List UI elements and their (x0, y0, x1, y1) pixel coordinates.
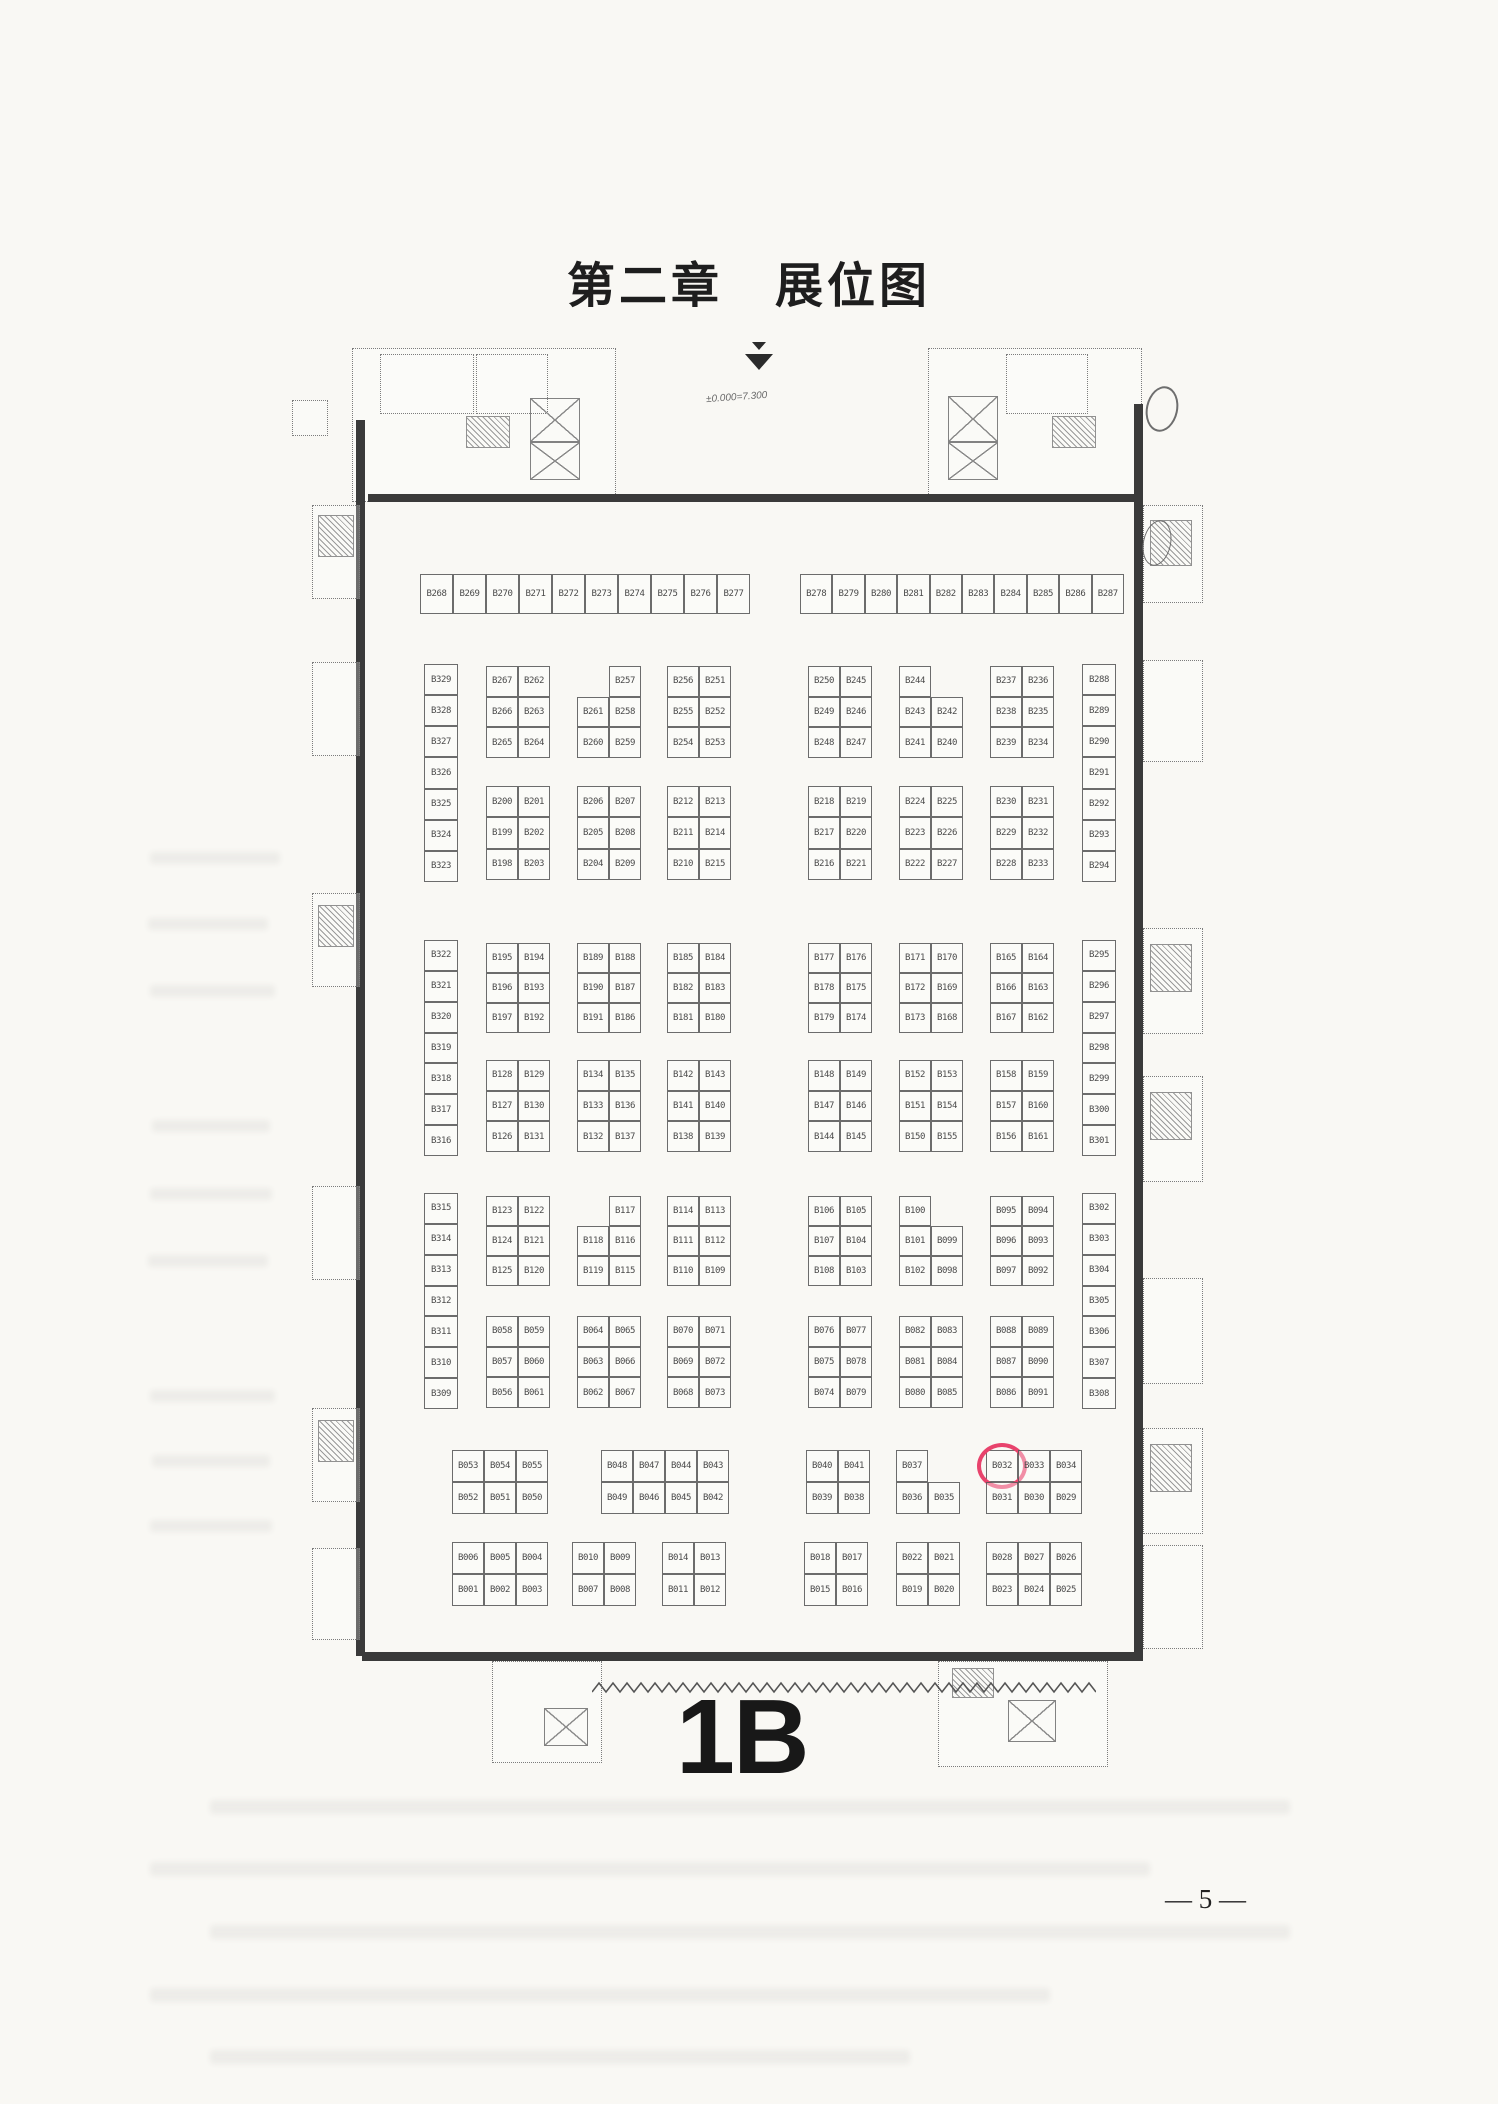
booth-block: B185B184B182B183B181B180 (667, 943, 731, 1033)
booth-cell: B231 (1022, 786, 1054, 817)
booth-notch (577, 1196, 609, 1226)
booth-cell: B182 (667, 973, 699, 1003)
booth-cell: B157 (990, 1091, 1022, 1122)
booth-cell: B001 (452, 1574, 484, 1606)
handwritten-mark (1142, 383, 1183, 435)
booth-cell: B196 (486, 973, 518, 1003)
booth-cell: B293 (1082, 820, 1116, 851)
booth-cell: B114 (667, 1196, 699, 1226)
booth-cell: B033 (1018, 1450, 1050, 1482)
booth-cell: B179 (808, 1003, 840, 1033)
booth-cell: B008 (604, 1574, 636, 1606)
scan-bleed (150, 852, 280, 864)
booth-cell: B186 (609, 1003, 641, 1033)
booth-cell: B227 (931, 849, 963, 880)
side-room (1143, 1545, 1203, 1649)
floor-plan: ±0.000=7.300 B268B269B270B271B272B273B27… (0, 0, 1498, 2104)
booth-cell: B086 (990, 1377, 1022, 1408)
scan-bleed (150, 1188, 272, 1200)
side-room (312, 1186, 360, 1280)
booth-cell: B209 (609, 849, 641, 880)
booth-cell: B103 (840, 1256, 872, 1286)
booth-cell: B278 (800, 574, 832, 614)
booth-cell: B011 (662, 1574, 694, 1606)
booth-cell: B037 (896, 1450, 928, 1482)
booth-block: B295B296B297B298B299B300B301 (1082, 940, 1116, 1156)
booth-cell: B197 (486, 1003, 518, 1033)
booth-cell: B242 (931, 697, 963, 728)
booth-cell: B252 (699, 697, 731, 728)
booth-cell: B213 (699, 786, 731, 817)
booth-cell: B258 (609, 697, 641, 728)
booth-cell: B307 (1082, 1347, 1116, 1378)
booth-cell: B102 (899, 1256, 931, 1286)
booth-cell: B082 (899, 1316, 931, 1347)
booth-cell: B303 (1082, 1224, 1116, 1255)
booth-cell: B254 (667, 727, 699, 758)
booth-cell: B118 (577, 1226, 609, 1256)
booth-cell: B208 (609, 817, 641, 848)
booth-block: B152B153B151B154B150B155 (899, 1060, 963, 1152)
booth-cell: B276 (684, 574, 717, 614)
booth-cell: B319 (424, 1033, 458, 1064)
elevator-shaft-icon (530, 398, 580, 442)
booth-cell: B067 (609, 1377, 641, 1408)
booth-cell: B289 (1082, 695, 1116, 726)
booth-cell: B260 (577, 727, 609, 758)
booth-cell: B255 (667, 697, 699, 728)
booth-block: B040B041B039B038 (806, 1450, 870, 1514)
booth-cell: B144 (808, 1121, 840, 1152)
booth-cell: B158 (990, 1060, 1022, 1091)
booth-block: B123B122B124B121B125B120 (486, 1196, 550, 1286)
booth-block: B288B289B290B291B292B293B294 (1082, 664, 1116, 882)
stairwell (1052, 416, 1096, 448)
booth-cell: B130 (518, 1091, 550, 1122)
booth-cell: B177 (808, 943, 840, 973)
booth-cell: B183 (699, 973, 731, 1003)
booth-cell: B105 (840, 1196, 872, 1226)
booth-cell: B002 (484, 1574, 516, 1606)
booth-block: B218B219B217B220B216B221 (808, 786, 872, 880)
booth-cell: B042 (697, 1482, 729, 1514)
booth-cell: B012 (694, 1574, 726, 1606)
booth-cell: B167 (990, 1003, 1022, 1033)
booth-cell: B146 (840, 1091, 872, 1122)
booth-block: B158B159B157B160B156B161 (990, 1060, 1054, 1152)
booth-cell: B253 (699, 727, 731, 758)
booth-cell: B053 (452, 1450, 484, 1482)
booth-cell: B127 (486, 1091, 518, 1122)
booth-cell: B123 (486, 1196, 518, 1226)
booth-cell: B301 (1082, 1125, 1116, 1156)
booth-cell: B069 (667, 1347, 699, 1378)
wall-right (1134, 404, 1143, 1656)
booth-cell: B168 (931, 1003, 963, 1033)
booth-block: B053B054B055B052B051B050 (452, 1450, 548, 1514)
booth-cell: B003 (516, 1574, 548, 1606)
booth-cell: B279 (832, 574, 864, 614)
booth-block: B177B176B178B175B179B174 (808, 943, 872, 1033)
booth-cell: B049 (601, 1482, 633, 1514)
booth-cell: B239 (990, 727, 1022, 758)
booth-block: B171B170B172B169B173B168 (899, 943, 963, 1033)
booth-block: B100B101B099B102B098 (899, 1196, 963, 1286)
booth-cell: B201 (518, 786, 550, 817)
side-room (1143, 1278, 1203, 1384)
booth-cell: B117 (609, 1196, 641, 1226)
booth-cell: B029 (1050, 1482, 1082, 1514)
booth-block: B106B105B107B104B108B103 (808, 1196, 872, 1286)
booth-cell: B092 (1022, 1256, 1054, 1286)
booth-cell: B023 (986, 1574, 1018, 1606)
booth-cell: B108 (808, 1256, 840, 1286)
booth-cell: B198 (486, 849, 518, 880)
booth-cell: B143 (699, 1060, 731, 1091)
booth-cell: B020 (928, 1574, 960, 1606)
booth-cell: B189 (577, 943, 609, 973)
booth-cell: B200 (486, 786, 518, 817)
booth-cell: B098 (931, 1256, 963, 1286)
booth-cell: B250 (808, 666, 840, 697)
booth-block: B267B262B266B263B265B264 (486, 666, 550, 758)
booth-cell: B050 (516, 1482, 548, 1514)
room-partition (380, 354, 474, 414)
booth-cell: B323 (424, 851, 458, 882)
booth-block: B082B083B081B084B080B085 (899, 1316, 963, 1408)
booth-cell: B126 (486, 1121, 518, 1152)
booth-cell: B005 (484, 1542, 516, 1574)
booth-cell: B140 (699, 1091, 731, 1122)
booth-cell: B121 (518, 1226, 550, 1256)
booth-cell: B128 (486, 1060, 518, 1091)
booth-cell: B311 (424, 1316, 458, 1347)
booth-cell: B166 (990, 973, 1022, 1003)
booth-cell: B294 (1082, 851, 1116, 882)
booth-cell: B026 (1050, 1542, 1082, 1574)
booth-block: B058B059B057B060B056B061 (486, 1316, 550, 1408)
booth-cell: B310 (424, 1347, 458, 1378)
booth-cell: B238 (990, 697, 1022, 728)
booth-cell: B018 (804, 1542, 836, 1574)
booth-cell: B097 (990, 1256, 1022, 1286)
booth-cell: B043 (697, 1450, 729, 1482)
booth-cell: B101 (899, 1226, 931, 1256)
booth-block: B006B005B004B001B002B003 (452, 1542, 548, 1606)
booth-cell: B232 (1022, 817, 1054, 848)
booth-cell: B268 (420, 574, 453, 614)
booth-cell: B041 (838, 1450, 870, 1482)
booth-cell: B287 (1092, 574, 1124, 614)
booth-cell: B095 (990, 1196, 1022, 1226)
booth-cell: B249 (808, 697, 840, 728)
stairwell (318, 1420, 354, 1462)
booth-cell: B040 (806, 1450, 838, 1482)
booth-cell: B046 (633, 1482, 665, 1514)
booth-cell: B234 (1022, 727, 1054, 758)
booth-cell: B145 (840, 1121, 872, 1152)
booth-cell: B314 (424, 1224, 458, 1255)
booth-cell: B244 (899, 666, 931, 697)
booth-cell: B122 (518, 1196, 550, 1226)
booth-cell: B028 (986, 1542, 1018, 1574)
booth-cell: B187 (609, 973, 641, 1003)
booth-cell: B218 (808, 786, 840, 817)
booth-block: B224B225B223B226B222B227 (899, 786, 963, 880)
booth-cell: B093 (1022, 1226, 1054, 1256)
booth-cell: B089 (1022, 1316, 1054, 1347)
scan-bleed (152, 1455, 270, 1467)
booth-cell: B030 (1018, 1482, 1050, 1514)
scan-bleed (210, 1800, 1290, 1814)
booth-block: B117B118B116B119B115 (577, 1196, 641, 1286)
booth-block: B165B164B166B163B167B162 (990, 943, 1054, 1033)
booth-cell: B302 (1082, 1193, 1116, 1224)
booth-cell: B291 (1082, 757, 1116, 788)
booth-cell: B139 (699, 1121, 731, 1152)
booth-cell: B153 (931, 1060, 963, 1091)
stairwell (466, 416, 510, 448)
booth-cell: B052 (452, 1482, 484, 1514)
elevator-shaft-icon (948, 442, 998, 480)
booth-cell: B124 (486, 1226, 518, 1256)
booth-cell: B325 (424, 789, 458, 820)
booth-cell: B308 (1082, 1378, 1116, 1409)
booth-cell: B056 (486, 1377, 518, 1408)
booth-block: B064B065B063B066B062B067 (577, 1316, 641, 1408)
booth-cell: B111 (667, 1226, 699, 1256)
booth-cell: B081 (899, 1347, 931, 1378)
scan-bleed (210, 1925, 1290, 1939)
booth-cell: B010 (572, 1542, 604, 1574)
booth-block: B128B129B127B130B126B131 (486, 1060, 550, 1152)
booth-cell: B138 (667, 1121, 699, 1152)
booth-cell: B251 (699, 666, 731, 697)
page-number: — 5 — (1165, 1884, 1246, 1915)
entrance-arrow-small-icon (752, 342, 766, 350)
booth-cell: B173 (899, 1003, 931, 1033)
booth-cell: B240 (931, 727, 963, 758)
booth-cell: B312 (424, 1286, 458, 1317)
booth-cell: B241 (899, 727, 931, 758)
booth-cell: B034 (1050, 1450, 1082, 1482)
booth-cell: B163 (1022, 973, 1054, 1003)
booth-cell: B224 (899, 786, 931, 817)
booth-cell: B219 (840, 786, 872, 817)
booth-cell: B084 (931, 1347, 963, 1378)
booth-cell: B100 (899, 1196, 931, 1226)
booth-cell: B275 (651, 574, 684, 614)
booth-block: B010B009B007B008 (572, 1542, 636, 1606)
booth-cell: B266 (486, 697, 518, 728)
booth-cell: B133 (577, 1091, 609, 1122)
entrance-arrow-icon (745, 354, 773, 370)
booth-cell: B021 (928, 1542, 960, 1574)
booth-cell: B317 (424, 1094, 458, 1125)
booth-cell: B016 (836, 1574, 868, 1606)
booth-cell: B178 (808, 973, 840, 1003)
booth-cell: B233 (1022, 849, 1054, 880)
booth-cell: B119 (577, 1256, 609, 1286)
scan-bleed (152, 1120, 270, 1132)
booth-cell: B062 (577, 1377, 609, 1408)
booth-cell: B320 (424, 1002, 458, 1033)
booth-cell: B290 (1082, 726, 1116, 757)
booth-cell: B017 (836, 1542, 868, 1574)
booth-cell: B264 (518, 727, 550, 758)
booth-cell: B004 (516, 1542, 548, 1574)
booth-block: B329B328B327B326B325B324B323 (424, 664, 458, 882)
booth-cell: B075 (808, 1347, 840, 1378)
booth-block: B212B213B211B214B210B215 (667, 786, 731, 880)
booth-cell: B180 (699, 1003, 731, 1033)
booth-cell: B313 (424, 1255, 458, 1286)
booth-block: B195B194B196B193B197B192 (486, 943, 550, 1033)
elevation-note: ±0.000=7.300 (706, 390, 768, 405)
booth-cell: B271 (519, 574, 552, 614)
booth-cell: B151 (899, 1091, 931, 1122)
booth-cell: B161 (1022, 1121, 1054, 1152)
booth-cell: B273 (585, 574, 618, 614)
wall-bottom (362, 1652, 1143, 1661)
elevator-shaft-icon (530, 442, 580, 480)
booth-cell: B039 (806, 1482, 838, 1514)
booth-block: B257B261B258B260B259 (577, 666, 641, 758)
booth-cell: B169 (931, 973, 963, 1003)
booth-cell: B316 (424, 1125, 458, 1156)
booth-cell: B207 (609, 786, 641, 817)
margin-box (292, 400, 328, 436)
booth-notch (928, 1450, 960, 1482)
booth-cell: B006 (452, 1542, 484, 1574)
booth-cell: B007 (572, 1574, 604, 1606)
booth-cell: B261 (577, 697, 609, 728)
booth-cell: B220 (840, 817, 872, 848)
booth-cell: B013 (694, 1542, 726, 1574)
booth-cell: B115 (609, 1256, 641, 1286)
booth-cell: B195 (486, 943, 518, 973)
side-room (312, 662, 360, 756)
booth-cell: B324 (424, 820, 458, 851)
booth-cell: B076 (808, 1316, 840, 1347)
booth-cell: B156 (990, 1121, 1022, 1152)
booth-cell: B096 (990, 1226, 1022, 1256)
booth-cell: B210 (667, 849, 699, 880)
elevator-shaft-icon (544, 1708, 588, 1746)
booth-cell: B192 (518, 1003, 550, 1033)
booth-cell: B327 (424, 726, 458, 757)
scan-bleed (148, 1255, 268, 1267)
booth-cell: B048 (601, 1450, 633, 1482)
booth-cell: B063 (577, 1347, 609, 1378)
booth-cell: B160 (1022, 1091, 1054, 1122)
booth-cell: B274 (618, 574, 651, 614)
booth-cell: B306 (1082, 1316, 1116, 1347)
booth-cell: B256 (667, 666, 699, 697)
booth-block: B256B251B255B252B254B253 (667, 666, 731, 758)
stairwell (318, 905, 354, 947)
booth-cell: B284 (994, 574, 1026, 614)
booth-cell: B019 (896, 1574, 928, 1606)
booth-cell: B080 (899, 1377, 931, 1408)
booth-cell: B090 (1022, 1347, 1054, 1378)
elevator-shaft-icon (948, 396, 998, 442)
booth-cell: B137 (609, 1121, 641, 1152)
booth-cell: B024 (1018, 1574, 1050, 1606)
booth-cell: B107 (808, 1226, 840, 1256)
booth-cell: B326 (424, 757, 458, 788)
zigzag-break-line (592, 1680, 1096, 1696)
booth-cell: B148 (808, 1060, 840, 1091)
booth-cell: B299 (1082, 1063, 1116, 1094)
booth-cell: B191 (577, 1003, 609, 1033)
booth-cell: B113 (699, 1196, 731, 1226)
booth-cell: B022 (896, 1542, 928, 1574)
booth-cell: B085 (931, 1377, 963, 1408)
booth-cell: B223 (899, 817, 931, 848)
scan-bleed (150, 1988, 1050, 2002)
booth-cell: B285 (1027, 574, 1059, 614)
booth-block: B315B314B313B312B311B310B309 (424, 1193, 458, 1409)
booth-cell: B106 (808, 1196, 840, 1226)
booth-cell: B300 (1082, 1094, 1116, 1125)
booth-cell: B188 (609, 943, 641, 973)
booth-cell: B070 (667, 1316, 699, 1347)
booth-cell: B318 (424, 1063, 458, 1094)
booth-cell: B212 (667, 786, 699, 817)
booth-cell: B051 (484, 1482, 516, 1514)
booth-cell: B014 (662, 1542, 694, 1574)
booth-cell: B091 (1022, 1377, 1054, 1408)
booth-cell: B058 (486, 1316, 518, 1347)
booth-cell: B154 (931, 1091, 963, 1122)
booth-cell: B222 (899, 849, 931, 880)
booth-cell: B298 (1082, 1033, 1116, 1064)
booth-cell: B074 (808, 1377, 840, 1408)
booth-cell: B237 (990, 666, 1022, 697)
booth-cell: B246 (840, 697, 872, 728)
booth-cell: B071 (699, 1316, 731, 1347)
booth-cell: B194 (518, 943, 550, 973)
booth-block: B237B236B238B235B239B234 (990, 666, 1054, 758)
booth-cell: B057 (486, 1347, 518, 1378)
scan-bleed (150, 1520, 272, 1532)
booth-cell: B235 (1022, 697, 1054, 728)
booth-cell: B025 (1050, 1574, 1082, 1606)
booth-cell: B286 (1059, 574, 1091, 614)
booth-cell: B257 (609, 666, 641, 697)
booth-cell: B262 (518, 666, 550, 697)
booth-cell: B129 (518, 1060, 550, 1091)
booth-cell: B061 (518, 1377, 550, 1408)
booth-cell: B304 (1082, 1255, 1116, 1286)
booth-cell: B269 (453, 574, 486, 614)
booth-cell: B120 (518, 1256, 550, 1286)
scan-bleed (150, 1862, 1150, 1876)
booth-block: B048B047B044B043B049B046B045B042 (601, 1450, 729, 1514)
booth-block: B142B143B141B140B138B139 (667, 1060, 731, 1152)
booth-cell: B263 (518, 697, 550, 728)
booth-cell: B015 (804, 1574, 836, 1606)
booth-cell: B131 (518, 1121, 550, 1152)
booth-cell: B184 (699, 943, 731, 973)
booth-cell: B087 (990, 1347, 1022, 1378)
booth-cell: B072 (699, 1347, 731, 1378)
booth-cell: B305 (1082, 1286, 1116, 1317)
booth-block: B088B089B087B090B086B091 (990, 1316, 1054, 1408)
booth-block: B206B207B205B208B204B209 (577, 786, 641, 880)
booth-cell: B035 (928, 1482, 960, 1514)
